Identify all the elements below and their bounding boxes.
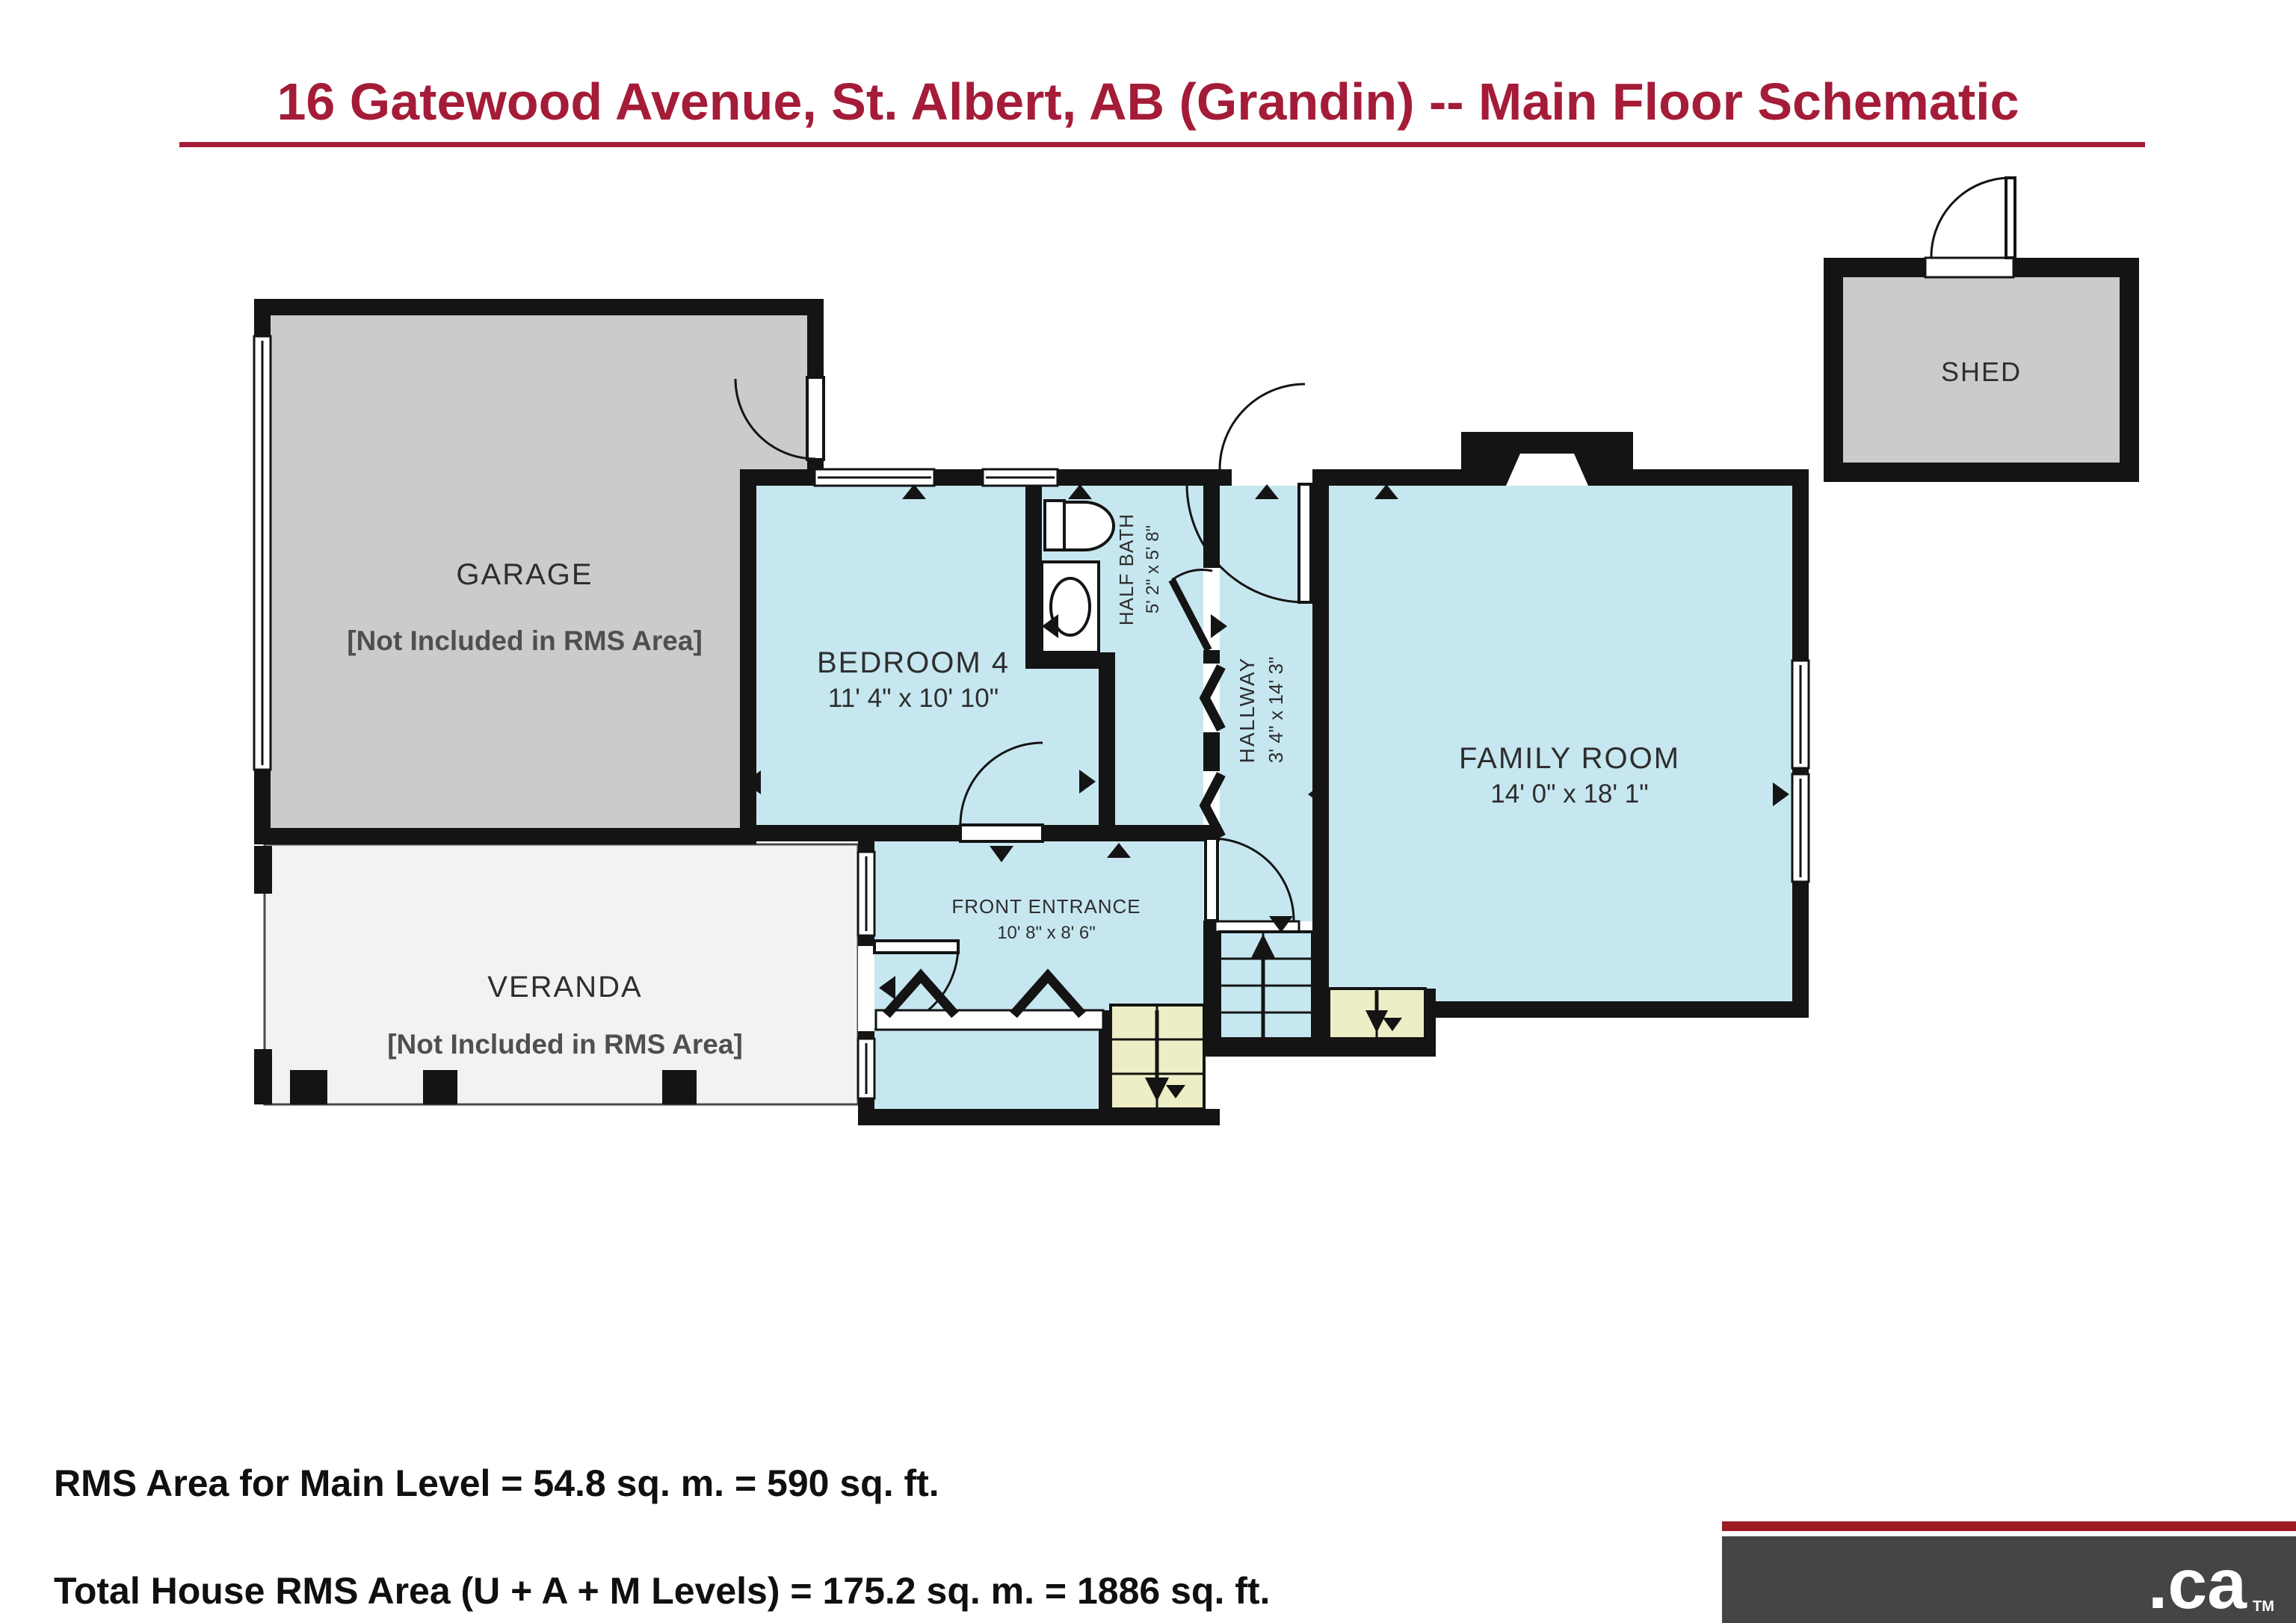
bedroom-door-leaf <box>960 825 1043 841</box>
veranda-post <box>290 1070 327 1104</box>
logo-tm: TM <box>2253 1598 2274 1615</box>
front-door-opening <box>858 946 874 1031</box>
shed-label: SHED <box>1941 356 2022 387</box>
family-door-leaf <box>1206 838 1218 921</box>
brand-logo: .ca TM <box>1722 1521 2296 1623</box>
back-door-leaf <box>1299 484 1311 602</box>
bifold-door-chevron <box>1205 667 1221 729</box>
rms-total-house-text: Total House RMS Area (U + A + M Levels) … <box>54 1570 1270 1612</box>
family-wall-bottom <box>1425 1001 1809 1018</box>
hallway-label: HALLWAY <box>1235 657 1259 764</box>
shed-wall-bottom <box>1824 463 2139 482</box>
veranda-note: [Not Included in RMS Area] <box>387 1029 743 1060</box>
family-room-label: FAMILY ROOM <box>1459 742 1680 775</box>
front-entrance-dims: 10' 8" x 8' 6" <box>997 923 1096 943</box>
floor-plan-page: 16 Gatewood Avenue, St. Albert, AB (Gran… <box>0 0 2296 1623</box>
veranda-label: VERANDA <box>487 971 642 1004</box>
shed-wall-right <box>2120 258 2139 482</box>
title-underline <box>179 142 2145 147</box>
half-bath-label: HALF BATH <box>1115 513 1138 625</box>
shed-wall-left <box>1824 258 1843 482</box>
nook-wall <box>1099 652 1115 841</box>
veranda-post <box>662 1070 697 1104</box>
garage-wall-right-upper <box>807 299 824 377</box>
fireplace-notch <box>1506 454 1588 486</box>
bedroom4-label: BEDROOM 4 <box>817 646 1010 679</box>
garage-door-leaf <box>807 377 824 460</box>
garage-wall-top <box>254 299 824 315</box>
garage-label: GARAGE <box>456 558 593 591</box>
garage-wall-bottom <box>254 828 756 844</box>
shed-door-opening <box>1925 258 2013 277</box>
page-title: 16 Gatewood Avenue, St. Albert, AB (Gran… <box>277 72 2019 131</box>
entrance-wall-bottom <box>858 1109 1220 1125</box>
hallway-dims: 3' 4" x 14' 3" <box>1265 657 1287 764</box>
toilet-tank <box>1045 501 1064 550</box>
hall-wall-left-e <box>1203 921 1220 1056</box>
bath-wall-left <box>1025 484 1042 669</box>
hall-wall-left-c <box>1203 732 1220 771</box>
logo-text: .ca <box>2148 1545 2247 1623</box>
stair-rail-sill <box>876 1010 1103 1030</box>
family-wall-left <box>1312 484 1329 1056</box>
bedroom4-dims: 11' 4" x 10' 10" <box>828 684 999 713</box>
shed-door-arc <box>1931 178 2010 257</box>
garage-note: [Not Included in RMS Area] <box>347 625 703 656</box>
veranda-post <box>254 1049 272 1104</box>
front-entrance-label: FRONT ENTRANCE <box>951 895 1141 918</box>
toilet-bowl <box>1064 502 1114 550</box>
hall-wall-left-b <box>1203 650 1220 664</box>
family-room-dims: 14' 0" x 18' 1" <box>1490 779 1648 809</box>
floor-plan-canvas: 16 Gatewood Avenue, St. Albert, AB (Gran… <box>0 0 2296 1623</box>
shed-door-leaf <box>2006 178 2015 258</box>
landing-wall-stub <box>1425 989 1436 1056</box>
front-door-leaf <box>874 941 958 953</box>
veranda-post <box>254 846 272 894</box>
stairs-wall-bottom <box>1203 1039 1436 1057</box>
veranda-post <box>423 1070 457 1104</box>
half-bath-dims: 5' 2" x 5' 8" <box>1143 525 1163 613</box>
logo-red-bar <box>1722 1521 2296 1531</box>
rms-main-level-text: RMS Area for Main Level = 54.8 sq. m. = … <box>54 1462 939 1504</box>
closet-nook-floor <box>1114 652 1203 825</box>
back-door-arc-outer <box>1220 384 1305 469</box>
